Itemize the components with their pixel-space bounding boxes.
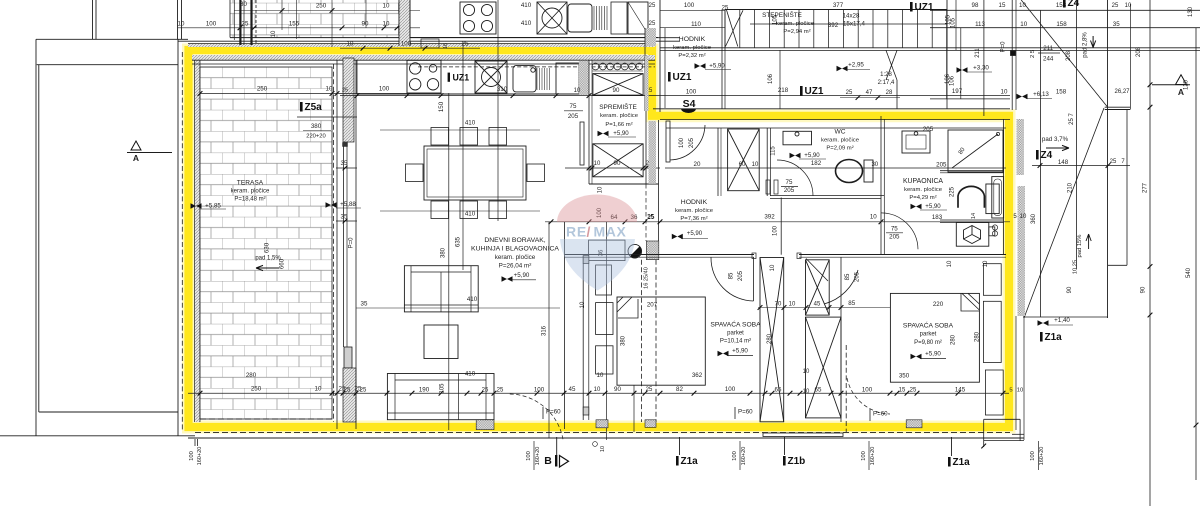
svg-text:100: 100 <box>773 225 779 236</box>
svg-text:277: 277 <box>1143 182 1149 193</box>
svg-text:25: 25 <box>1112 3 1119 9</box>
svg-text:205: 205 <box>889 234 900 241</box>
svg-text:10: 10 <box>1019 2 1026 9</box>
svg-text:380: 380 <box>441 247 447 258</box>
svg-text:/: / <box>587 224 591 240</box>
svg-text:100: 100 <box>526 451 532 461</box>
svg-text:P=7,36 m²: P=7,36 m² <box>680 216 707 222</box>
svg-text:35: 35 <box>361 301 368 308</box>
svg-text:150: 150 <box>438 101 445 112</box>
svg-text:220: 220 <box>933 301 944 308</box>
svg-text:155: 155 <box>289 21 300 28</box>
svg-text:pad 2,8%: pad 2,8% <box>1083 32 1089 58</box>
svg-text:100: 100 <box>862 387 873 394</box>
svg-text:45: 45 <box>814 302 821 308</box>
svg-text:10: 10 <box>580 301 586 308</box>
svg-text:25: 25 <box>1110 159 1117 165</box>
svg-text:25: 25 <box>648 214 655 221</box>
svg-text:220+20: 220+20 <box>306 134 326 140</box>
svg-text:10: 10 <box>315 386 322 393</box>
svg-text:60: 60 <box>739 162 746 168</box>
svg-text:10: 10 <box>1125 3 1132 9</box>
svg-text:211: 211 <box>975 48 981 58</box>
svg-text:90: 90 <box>1141 286 1147 293</box>
svg-text:Z1a: Z1a <box>681 456 699 467</box>
svg-text:25: 25 <box>846 90 853 96</box>
svg-text:10: 10 <box>347 41 354 48</box>
svg-text:392: 392 <box>828 22 839 29</box>
svg-text:65: 65 <box>815 387 822 394</box>
svg-text:+6,13: +6,13 <box>1033 91 1049 98</box>
svg-text:10: 10 <box>1001 89 1008 96</box>
svg-text:98: 98 <box>972 2 979 9</box>
svg-text:P=2,32 m²: P=2,32 m² <box>678 53 705 59</box>
svg-text:350: 350 <box>899 373 910 380</box>
svg-text:MAX: MAX <box>594 224 627 240</box>
svg-text:TERASA: TERASA <box>237 180 264 187</box>
svg-text:210: 210 <box>1068 182 1074 193</box>
svg-text:244: 244 <box>1043 56 1054 63</box>
svg-text:208: 208 <box>1066 50 1072 61</box>
svg-text:25: 25 <box>649 21 656 27</box>
svg-text:380: 380 <box>311 123 322 130</box>
svg-text:25: 25 <box>910 388 917 394</box>
svg-text:keram. pločice: keram. pločice <box>495 254 536 261</box>
svg-text:47: 47 <box>866 90 873 96</box>
svg-text:10: 10 <box>803 389 810 395</box>
svg-text:100: 100 <box>189 451 195 461</box>
svg-text:85: 85 <box>729 272 735 279</box>
svg-text:205: 205 <box>784 187 795 194</box>
svg-text:HODNIK: HODNIK <box>679 36 706 43</box>
svg-text:STEPENIŠTE: STEPENIŠTE <box>762 10 802 19</box>
svg-text:+1,40: +1,40 <box>1054 317 1070 324</box>
svg-text:SPREMIŠTE: SPREMIŠTE <box>599 102 637 111</box>
svg-text:Z1a: Z1a <box>953 457 971 468</box>
svg-text:+5,90: +5,90 <box>732 348 748 355</box>
svg-text:90: 90 <box>613 87 620 94</box>
svg-text:+5,90: +5,90 <box>613 130 629 137</box>
svg-text:RE: RE <box>566 224 587 240</box>
svg-text:30: 30 <box>871 162 878 168</box>
svg-text:10: 10 <box>326 86 333 93</box>
svg-text:310: 310 <box>497 86 508 93</box>
svg-text:P=2,09 m²: P=2,09 m² <box>826 146 853 152</box>
svg-text:100: 100 <box>686 89 697 96</box>
svg-text:82: 82 <box>676 386 683 393</box>
svg-text:410: 410 <box>465 371 476 378</box>
svg-text:keram. pločice: keram. pločice <box>821 138 860 144</box>
svg-text:10: 10 <box>271 30 277 37</box>
svg-text:15x17,4: 15x17,4 <box>843 21 866 28</box>
svg-text:10: 10 <box>383 3 390 10</box>
svg-text:25: 25 <box>360 388 367 394</box>
svg-text:90: 90 <box>1067 286 1073 293</box>
svg-text:225: 225 <box>950 186 956 197</box>
svg-text:+5,88: +5,88 <box>340 201 356 208</box>
svg-text:410: 410 <box>521 2 532 9</box>
svg-text:P=0: P=0 <box>349 237 355 249</box>
svg-text:HODNIK: HODNIK <box>681 199 708 206</box>
svg-text:14: 14 <box>971 213 977 219</box>
svg-text:410: 410 <box>465 211 476 218</box>
svg-text:KUHINJA I BLAGOVAONICA: KUHINJA I BLAGOVAONICA <box>471 246 559 253</box>
svg-text:45: 45 <box>569 386 576 393</box>
svg-text:90: 90 <box>614 386 621 393</box>
svg-text:15: 15 <box>999 2 1006 9</box>
svg-text:15: 15 <box>899 388 906 394</box>
svg-text:+3,30: +3,30 <box>973 65 989 72</box>
svg-text:182: 182 <box>811 160 822 167</box>
svg-text:392: 392 <box>764 214 775 221</box>
svg-text:110: 110 <box>691 21 701 28</box>
svg-text:P=18,48 m²: P=18,48 m² <box>234 197 265 203</box>
svg-text:316: 316 <box>542 325 548 336</box>
svg-text:410: 410 <box>467 296 478 303</box>
svg-text:205: 205 <box>738 270 744 281</box>
svg-text:218: 218 <box>778 87 789 94</box>
svg-text:5: 5 <box>1009 388 1012 394</box>
svg-text:P=9,80 m²: P=9,80 m² <box>914 340 942 346</box>
svg-text:pad 1,5%: pad 1,5% <box>255 256 281 262</box>
svg-text:P=26,04 m²: P=26,04 m² <box>499 263 532 270</box>
svg-text:90: 90 <box>362 21 369 28</box>
svg-text:410: 410 <box>521 20 532 27</box>
svg-text:630: 630 <box>264 242 271 253</box>
svg-text:26,27: 26,27 <box>1114 89 1130 95</box>
svg-text:250: 250 <box>251 386 262 393</box>
svg-text:keram. pločice: keram. pločice <box>673 45 712 51</box>
svg-text:P=60: P=60 <box>873 411 888 418</box>
svg-text:DNEVNI BORAVAK,: DNEVNI BORAVAK, <box>484 237 545 244</box>
svg-text:25: 25 <box>344 388 351 394</box>
svg-text:A: A <box>133 153 139 163</box>
svg-text:25: 25 <box>482 388 489 394</box>
svg-text:205: 205 <box>568 113 579 120</box>
svg-text:160+20: 160+20 <box>1039 447 1045 466</box>
svg-text:10 25: 10 25 <box>1073 260 1079 275</box>
svg-text:keram. pločice: keram. pločice <box>776 21 815 27</box>
svg-text:P=10,14 m²: P=10,14 m² <box>720 339 751 345</box>
svg-text:205: 205 <box>855 271 861 282</box>
svg-text:2 5: 2 5 <box>1030 50 1036 58</box>
svg-text:10: 10 <box>597 373 604 379</box>
svg-text:10: 10 <box>1020 214 1027 220</box>
svg-text:75: 75 <box>891 226 898 233</box>
svg-text:106: 106 <box>768 73 774 84</box>
svg-text:SPAVAĆA SOBA: SPAVAĆA SOBA <box>710 320 761 329</box>
svg-text:100: 100 <box>206 21 217 28</box>
svg-text:205: 205 <box>936 162 947 169</box>
svg-text:10: 10 <box>947 260 953 267</box>
svg-text:10: 10 <box>1020 21 1027 28</box>
svg-text:P=1,66 m²: P=1,66 m² <box>605 122 632 128</box>
svg-text:P=60: P=60 <box>738 409 753 416</box>
svg-text:+5,90: +5,90 <box>804 152 820 159</box>
svg-text:10: 10 <box>594 387 601 393</box>
svg-text:35: 35 <box>1113 21 1120 28</box>
svg-text:1:28: 1:28 <box>880 72 892 78</box>
svg-text:75: 75 <box>786 179 793 186</box>
svg-text:10: 10 <box>789 302 796 308</box>
svg-text:keram. pločice: keram. pločice <box>904 187 943 193</box>
svg-text:207: 207 <box>647 302 658 309</box>
svg-text:100: 100 <box>861 451 867 461</box>
svg-text:keram. pločice: keram. pločice <box>675 208 714 214</box>
svg-text:90: 90 <box>614 160 621 167</box>
svg-text:Z5a: Z5a <box>305 102 323 113</box>
svg-text:100: 100 <box>401 41 412 48</box>
svg-text:10: 10 <box>983 260 989 267</box>
svg-text:380: 380 <box>621 335 627 346</box>
svg-text:10: 10 <box>594 161 601 167</box>
svg-text:280: 280 <box>246 372 257 379</box>
svg-text:35: 35 <box>341 214 348 221</box>
svg-text:25: 25 <box>497 388 504 394</box>
svg-text:B: B <box>544 455 552 467</box>
svg-text:410: 410 <box>465 120 476 127</box>
svg-text:120: 120 <box>1184 79 1190 90</box>
svg-text:280: 280 <box>767 333 773 344</box>
svg-text:parket: parket <box>920 332 937 338</box>
svg-text:158: 158 <box>1056 21 1067 28</box>
svg-text:16 25/40: 16 25/40 <box>644 267 650 289</box>
svg-text:+5,90: +5,90 <box>925 203 941 210</box>
svg-text:20: 20 <box>694 161 701 168</box>
svg-text:+2,95: +2,95 <box>848 62 864 69</box>
svg-text:10: 10 <box>383 21 390 28</box>
svg-text:25: 25 <box>649 3 656 9</box>
svg-text:UZ1: UZ1 <box>915 2 934 13</box>
svg-text:100: 100 <box>684 2 695 9</box>
svg-text:25 7: 25 7 <box>1069 113 1075 125</box>
svg-text:pad 15%: pad 15% <box>1077 235 1083 258</box>
svg-text:280: 280 <box>951 334 957 345</box>
svg-text:parket: parket <box>727 331 744 337</box>
svg-text:211: 211 <box>1043 45 1053 52</box>
svg-text:SPAVAĆA SOBA: SPAVAĆA SOBA <box>903 321 954 330</box>
svg-text:10: 10 <box>598 186 604 193</box>
svg-text:100: 100 <box>1030 451 1036 461</box>
svg-text:106: 106 <box>950 75 956 86</box>
svg-text:10: 10 <box>752 162 759 168</box>
svg-text:WC: WC <box>835 129 846 136</box>
svg-text:2:17,4: 2:17,4 <box>878 80 895 86</box>
svg-text:160+20: 160+20 <box>870 447 876 466</box>
svg-text:28: 28 <box>886 90 893 96</box>
svg-text:35: 35 <box>341 160 348 167</box>
svg-text:10: 10 <box>574 88 581 94</box>
svg-text:105: 105 <box>440 383 446 394</box>
svg-text:UZ1: UZ1 <box>453 73 470 83</box>
svg-text:P=0: P=0 <box>1001 41 1007 53</box>
svg-text:250: 250 <box>257 86 268 93</box>
svg-text:100: 100 <box>534 387 545 394</box>
svg-text:115: 115 <box>771 146 777 156</box>
svg-text:10: 10 <box>178 21 185 28</box>
svg-text:+5,90: +5,90 <box>925 351 941 358</box>
svg-text:75: 75 <box>570 103 577 110</box>
svg-text:205: 205 <box>689 137 695 148</box>
svg-text:377: 377 <box>833 2 844 9</box>
svg-text:+5,90: +5,90 <box>514 272 530 279</box>
svg-text:10: 10 <box>803 369 810 375</box>
svg-text:25: 25 <box>646 387 653 393</box>
svg-text:160+20: 160+20 <box>535 447 541 466</box>
svg-text:148: 148 <box>1058 159 1069 166</box>
svg-text:635: 635 <box>456 236 462 247</box>
svg-text:160+20: 160+20 <box>197 447 203 466</box>
svg-text:10: 10 <box>600 446 606 452</box>
svg-text:25: 25 <box>722 6 729 12</box>
svg-text:10: 10 <box>1017 388 1023 394</box>
svg-text:+5,90: +5,90 <box>687 230 703 237</box>
svg-text:540: 540 <box>1186 267 1192 278</box>
svg-text:10: 10 <box>870 214 877 221</box>
svg-text:Z1b: Z1b <box>788 456 806 467</box>
svg-text:P=4,29 m²: P=4,29 m² <box>909 195 936 201</box>
svg-text:P=60: P=60 <box>546 409 561 416</box>
svg-text:362: 362 <box>692 372 703 379</box>
svg-text:205: 205 <box>923 126 934 133</box>
svg-text:250: 250 <box>316 3 327 10</box>
svg-text:100: 100 <box>379 86 390 93</box>
svg-text:100: 100 <box>732 451 738 461</box>
svg-text:pad 3,7%: pad 3,7% <box>1042 136 1069 143</box>
svg-text:10: 10 <box>770 264 776 271</box>
svg-text:360: 360 <box>1031 213 1037 224</box>
svg-text:P=2,94 m²: P=2,94 m² <box>783 29 810 35</box>
svg-text:keram. pločice: keram. pločice <box>600 113 639 119</box>
svg-text:280: 280 <box>975 331 981 342</box>
svg-text:25: 25 <box>242 21 249 28</box>
svg-text:85: 85 <box>848 300 855 307</box>
svg-text:130: 130 <box>1188 6 1194 17</box>
svg-text:+5,90: +5,90 <box>709 63 725 70</box>
svg-text:Z1a: Z1a <box>1045 332 1063 343</box>
svg-text:145: 145 <box>955 387 966 394</box>
svg-text:85: 85 <box>845 273 851 280</box>
svg-text:100: 100 <box>725 386 736 393</box>
svg-text:KUPAONICA: KUPAONICA <box>903 178 943 185</box>
svg-text:25: 25 <box>342 88 348 94</box>
svg-text:160+20: 160+20 <box>741 447 747 466</box>
svg-text:keram. pločice: keram. pločice <box>231 189 270 195</box>
svg-text:190: 190 <box>419 387 430 394</box>
svg-text:+5,85: +5,85 <box>205 203 221 210</box>
svg-text:158: 158 <box>1056 89 1067 96</box>
svg-text:Z4: Z4 <box>1068 0 1080 9</box>
svg-text:100: 100 <box>679 137 685 148</box>
svg-text:Z4: Z4 <box>1041 150 1053 161</box>
svg-text:197: 197 <box>952 88 963 95</box>
svg-text:208: 208 <box>1136 46 1142 57</box>
svg-text:S4: S4 <box>683 98 696 110</box>
svg-text:UZ1: UZ1 <box>673 72 692 83</box>
svg-text:113: 113 <box>975 21 985 28</box>
svg-text:70: 70 <box>775 302 782 308</box>
svg-text:105: 105 <box>951 17 957 28</box>
svg-text:14x28: 14x28 <box>843 13 860 20</box>
svg-text:105: 105 <box>773 14 779 25</box>
svg-text:65: 65 <box>775 387 782 394</box>
